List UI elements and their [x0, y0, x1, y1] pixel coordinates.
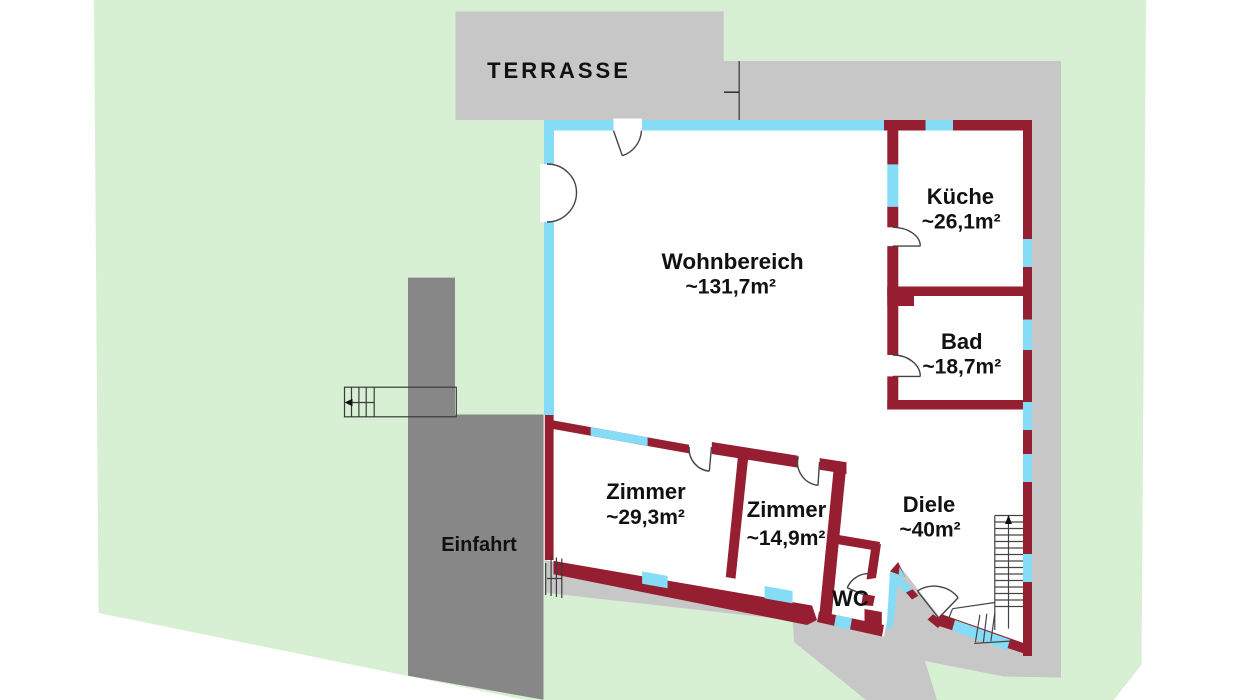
svg-text:~131,7m²: ~131,7m²	[686, 276, 776, 299]
svg-text:~29,3m²: ~29,3m²	[606, 506, 685, 529]
svg-text:Einfahrt: Einfahrt	[441, 534, 517, 556]
svg-text:Wohnbereich: Wohnbereich	[662, 249, 804, 274]
svg-text:~26,1m²: ~26,1m²	[922, 211, 1001, 234]
svg-text:TERRASSE: TERRASSE	[487, 58, 631, 83]
svg-text:Küche: Küche	[927, 184, 994, 209]
svg-text:~14,9m²: ~14,9m²	[747, 527, 826, 550]
svg-text:Diele: Diele	[903, 492, 956, 517]
svg-text:Zimmer: Zimmer	[747, 497, 827, 522]
svg-text:Bad: Bad	[941, 329, 983, 354]
svg-text:~18,7m²: ~18,7m²	[922, 356, 1001, 379]
svg-text:WC: WC	[832, 586, 869, 611]
svg-text:Zimmer: Zimmer	[606, 479, 686, 504]
svg-text:~40m²: ~40m²	[899, 519, 960, 542]
